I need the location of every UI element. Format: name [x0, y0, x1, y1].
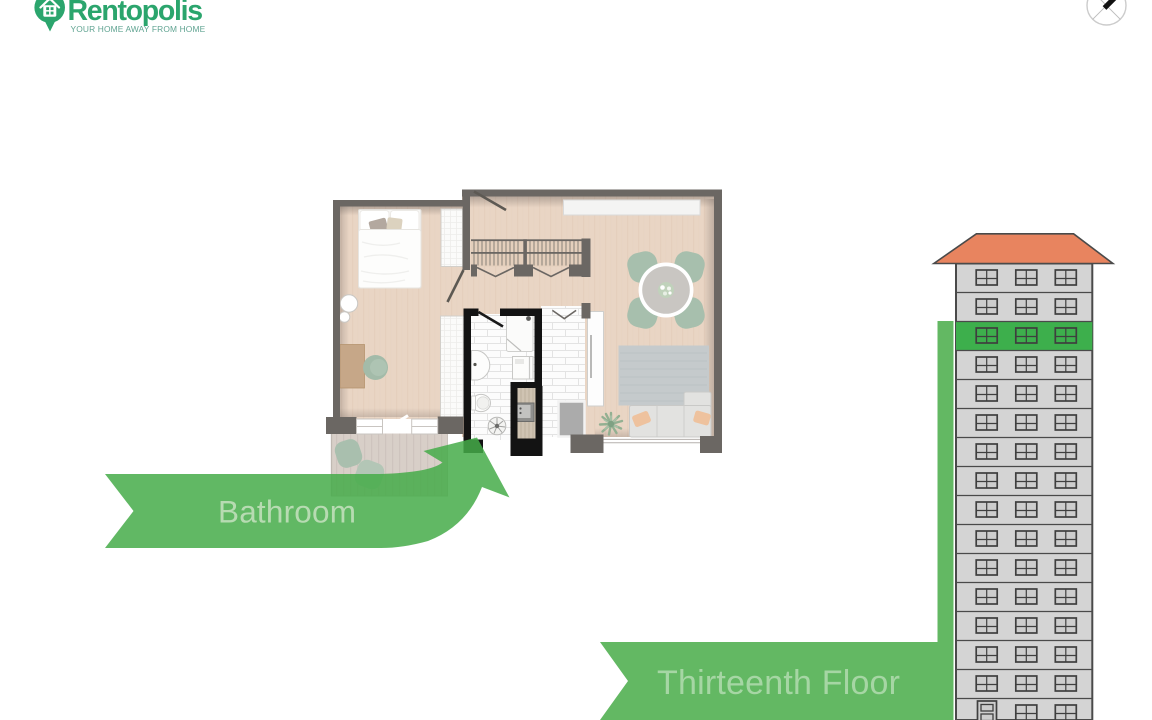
svg-text:Rentopolis: Rentopolis — [68, 0, 203, 27]
svg-text:Bathroom: Bathroom — [218, 494, 356, 530]
svg-text:YOUR HOME AWAY FROM HOME: YOUR HOME AWAY FROM HOME — [71, 24, 206, 34]
svg-text:Thirteenth Floor: Thirteenth Floor — [657, 664, 900, 702]
